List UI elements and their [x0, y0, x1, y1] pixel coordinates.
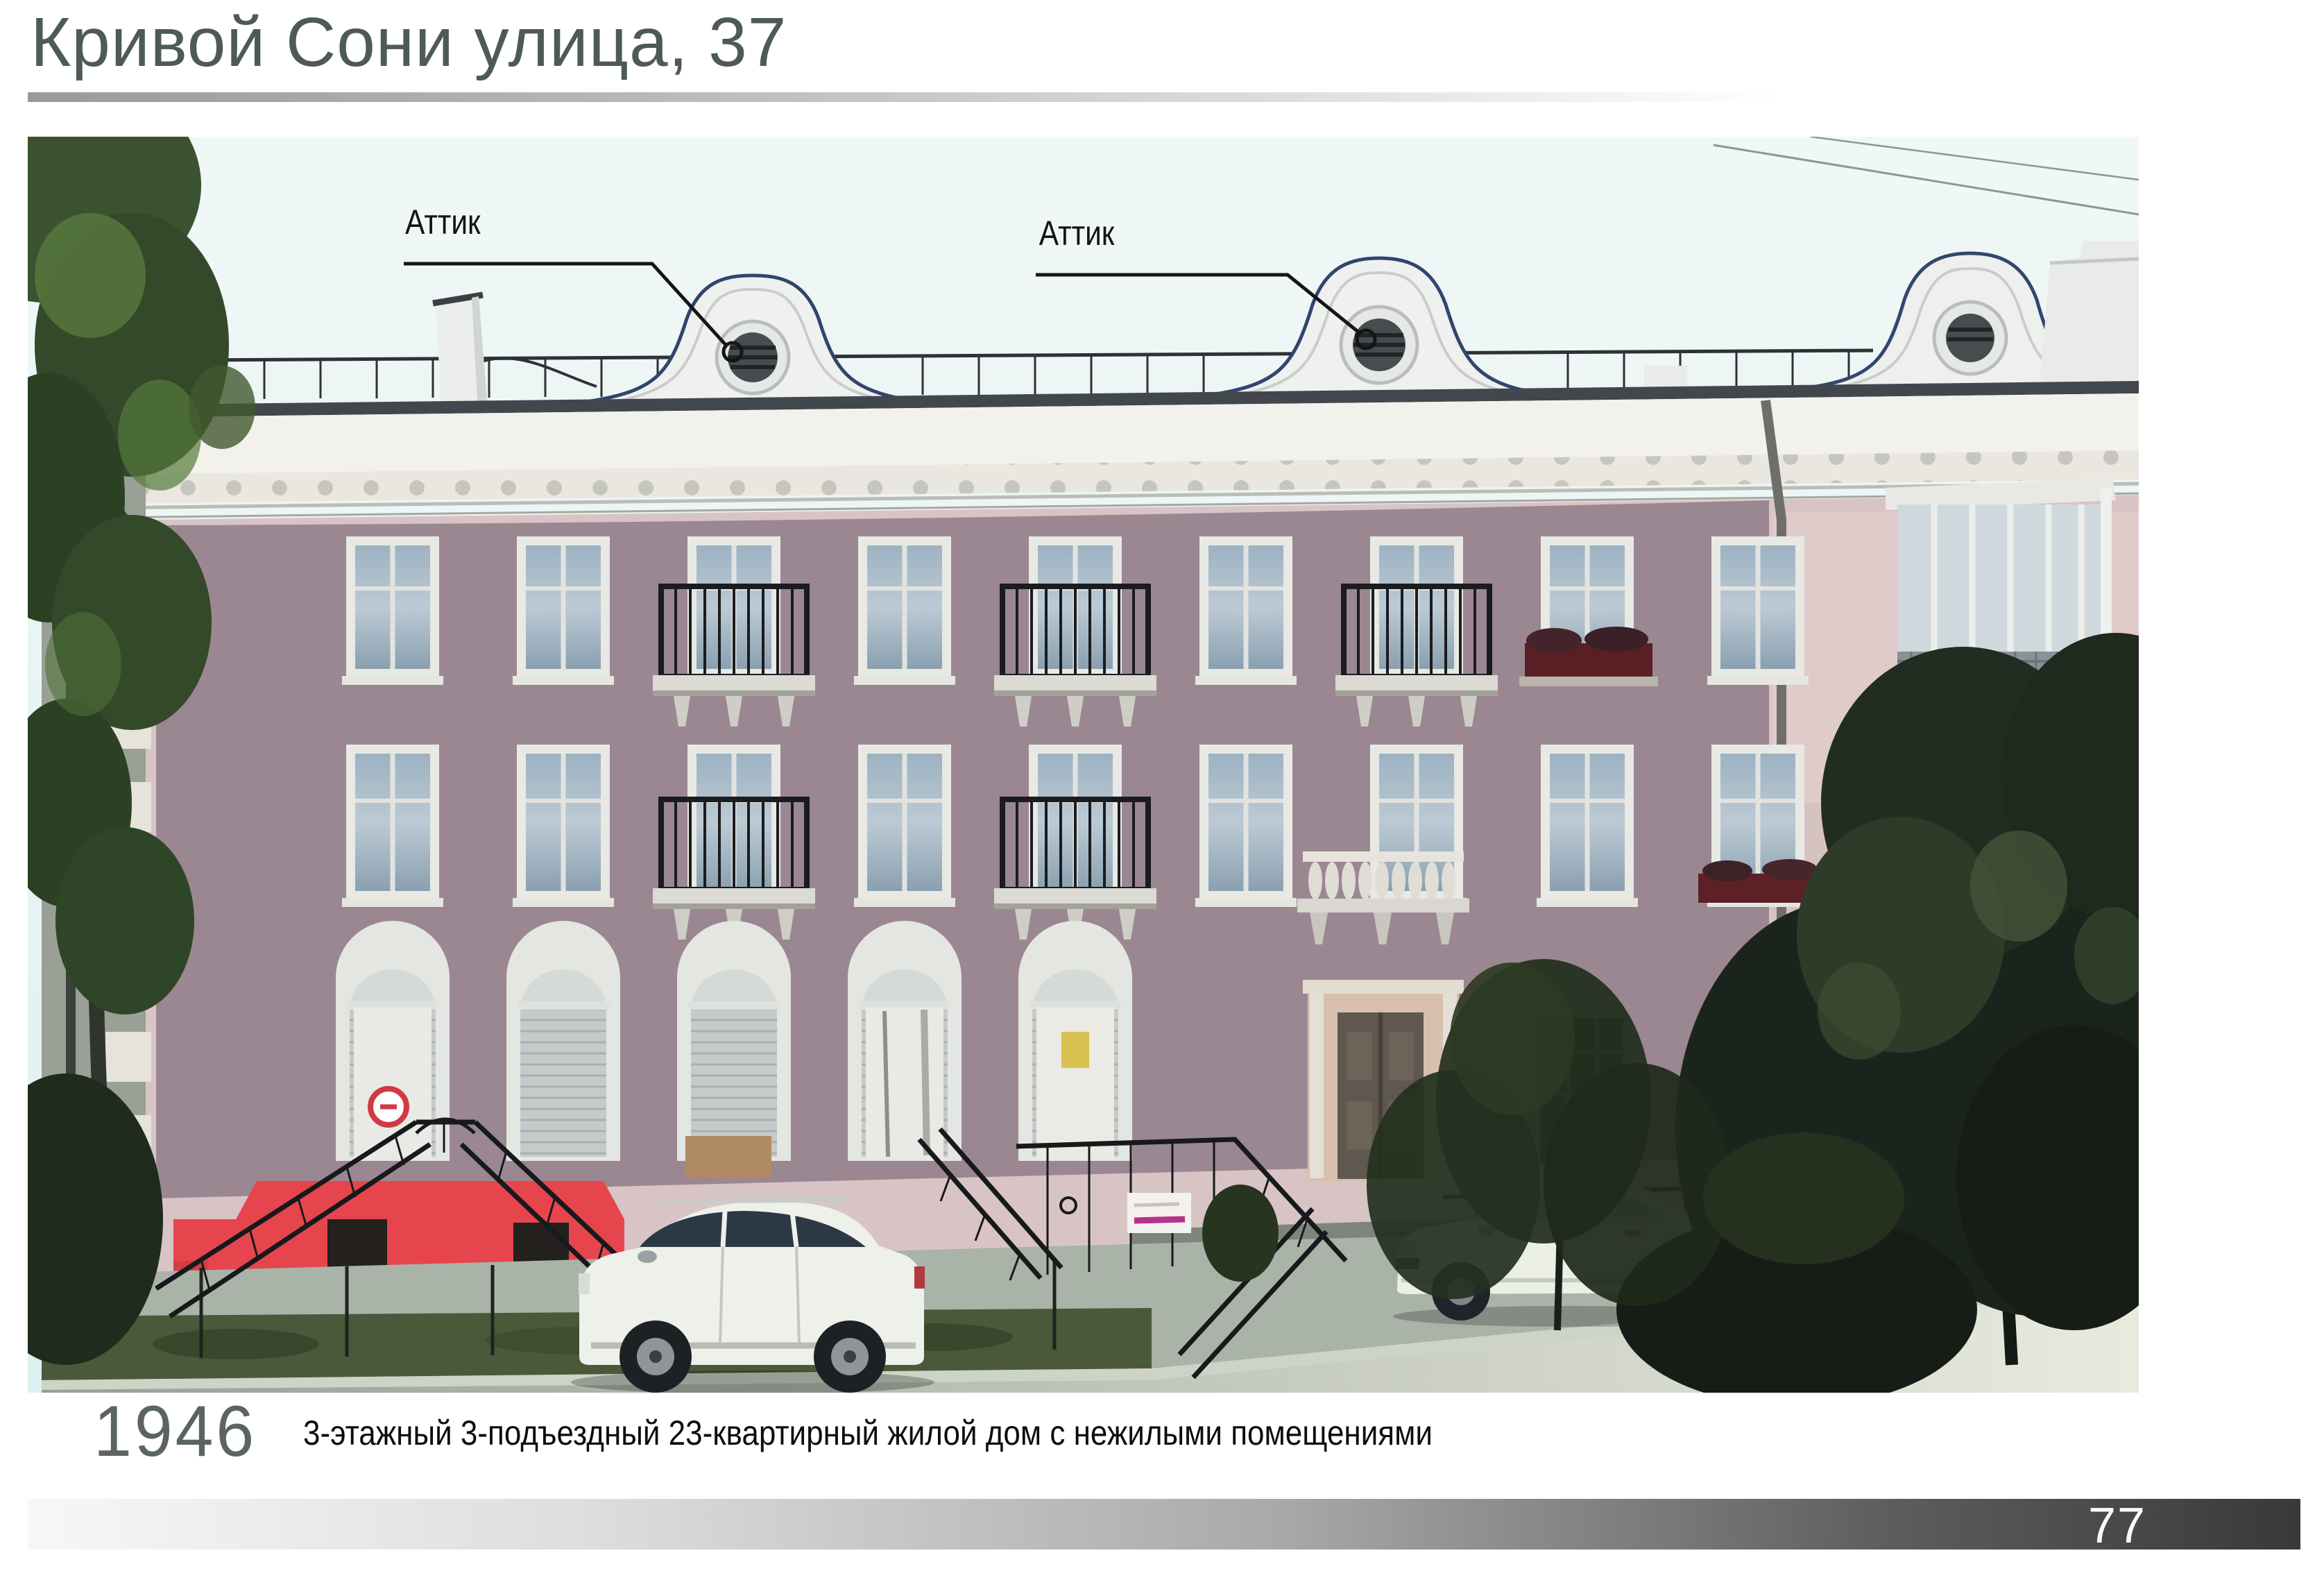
caption-year: 1946 — [94, 1391, 257, 1473]
footer-bar: 77 — [28, 1499, 2300, 1550]
entrance-door-3 — [1036, 1008, 1114, 1159]
page-number: 77 — [2048, 1497, 2187, 1554]
entrance-door-2 — [866, 1008, 943, 1159]
building-photo: Аттик Аттик — [28, 137, 2139, 1393]
page-title: Кривой Сони улица, 37 — [31, 3, 787, 83]
document-page: Кривой Сони улица, 37 — [0, 0, 2324, 1596]
title-rule — [28, 92, 1831, 102]
wall-sign — [1127, 1193, 1191, 1233]
flower-balcony — [1519, 627, 1658, 686]
caption-text: 3-этажный 3-подъездный 23-квартирный жил… — [303, 1413, 1433, 1453]
annotation-label-1: Аттик — [405, 203, 481, 241]
facade-photo-scene: Аттик Аттик — [28, 137, 2139, 1393]
annotation-label-2: Аттик — [1039, 214, 1115, 253]
